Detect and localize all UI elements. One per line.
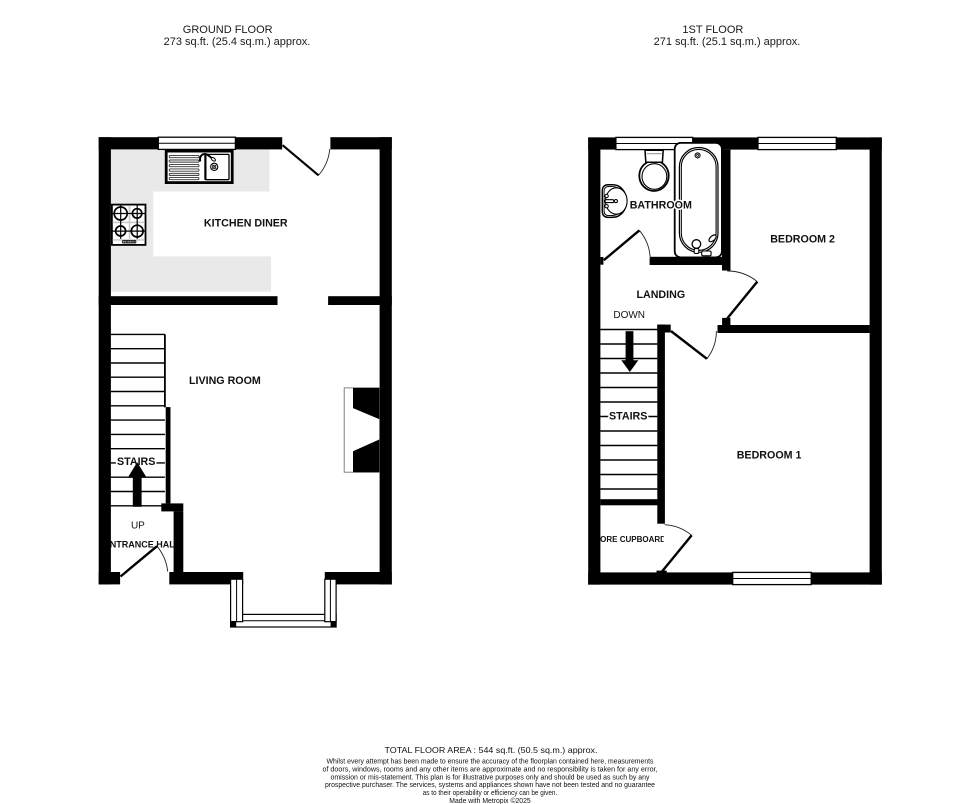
svg-text:BATHROOM: BATHROOM <box>630 199 692 211</box>
svg-text:ENTRANCE HALL: ENTRANCE HALL <box>104 540 181 550</box>
svg-text:UP: UP <box>131 520 145 531</box>
svg-text:KITCHEN DINER: KITCHEN DINER <box>204 217 288 229</box>
svg-text:LANDING: LANDING <box>636 289 685 301</box>
svg-text:of doors, windows, rooms and a: of doors, windows, rooms and any other i… <box>323 766 658 773</box>
svg-text:BEDROOM 2: BEDROOM 2 <box>770 234 835 246</box>
svg-text:STAIRS: STAIRS <box>609 411 647 423</box>
svg-text:1ST FLOOR: 1ST FLOOR <box>682 24 743 36</box>
svg-text:Whilst every attempt has been: Whilst every attempt has been made to en… <box>327 759 654 766</box>
svg-text:STORE CUPBOARD: STORE CUPBOARD <box>590 535 666 544</box>
svg-text:273 sq.ft. (25.4 sq.m.) approx: 273 sq.ft. (25.4 sq.m.) approx. <box>164 36 311 48</box>
svg-text:Made with Metropix ©2025: Made with Metropix ©2025 <box>449 797 530 804</box>
svg-text:omission or mis-statement. Thi: omission or mis-statement. This plan is … <box>331 774 650 781</box>
svg-text:BEDROOM 1: BEDROOM 1 <box>737 449 802 461</box>
svg-text:prospective purchaser. The ser: prospective purchaser. The services, sys… <box>325 782 655 789</box>
svg-text:271 sq.ft. (25.1 sq.m.) approx: 271 sq.ft. (25.1 sq.m.) approx. <box>654 36 801 48</box>
svg-text:LIVING ROOM: LIVING ROOM <box>189 375 261 387</box>
svg-text:GROUND FLOOR: GROUND FLOOR <box>183 24 273 36</box>
svg-text:TOTAL FLOOR AREA : 544 sq.ft.: TOTAL FLOOR AREA : 544 sq.ft. (50.5 sq.m… <box>385 745 598 755</box>
svg-text:DOWN: DOWN <box>613 310 645 321</box>
svg-text:as to their operability or eff: as to their operability or efficiency ca… <box>423 790 558 797</box>
